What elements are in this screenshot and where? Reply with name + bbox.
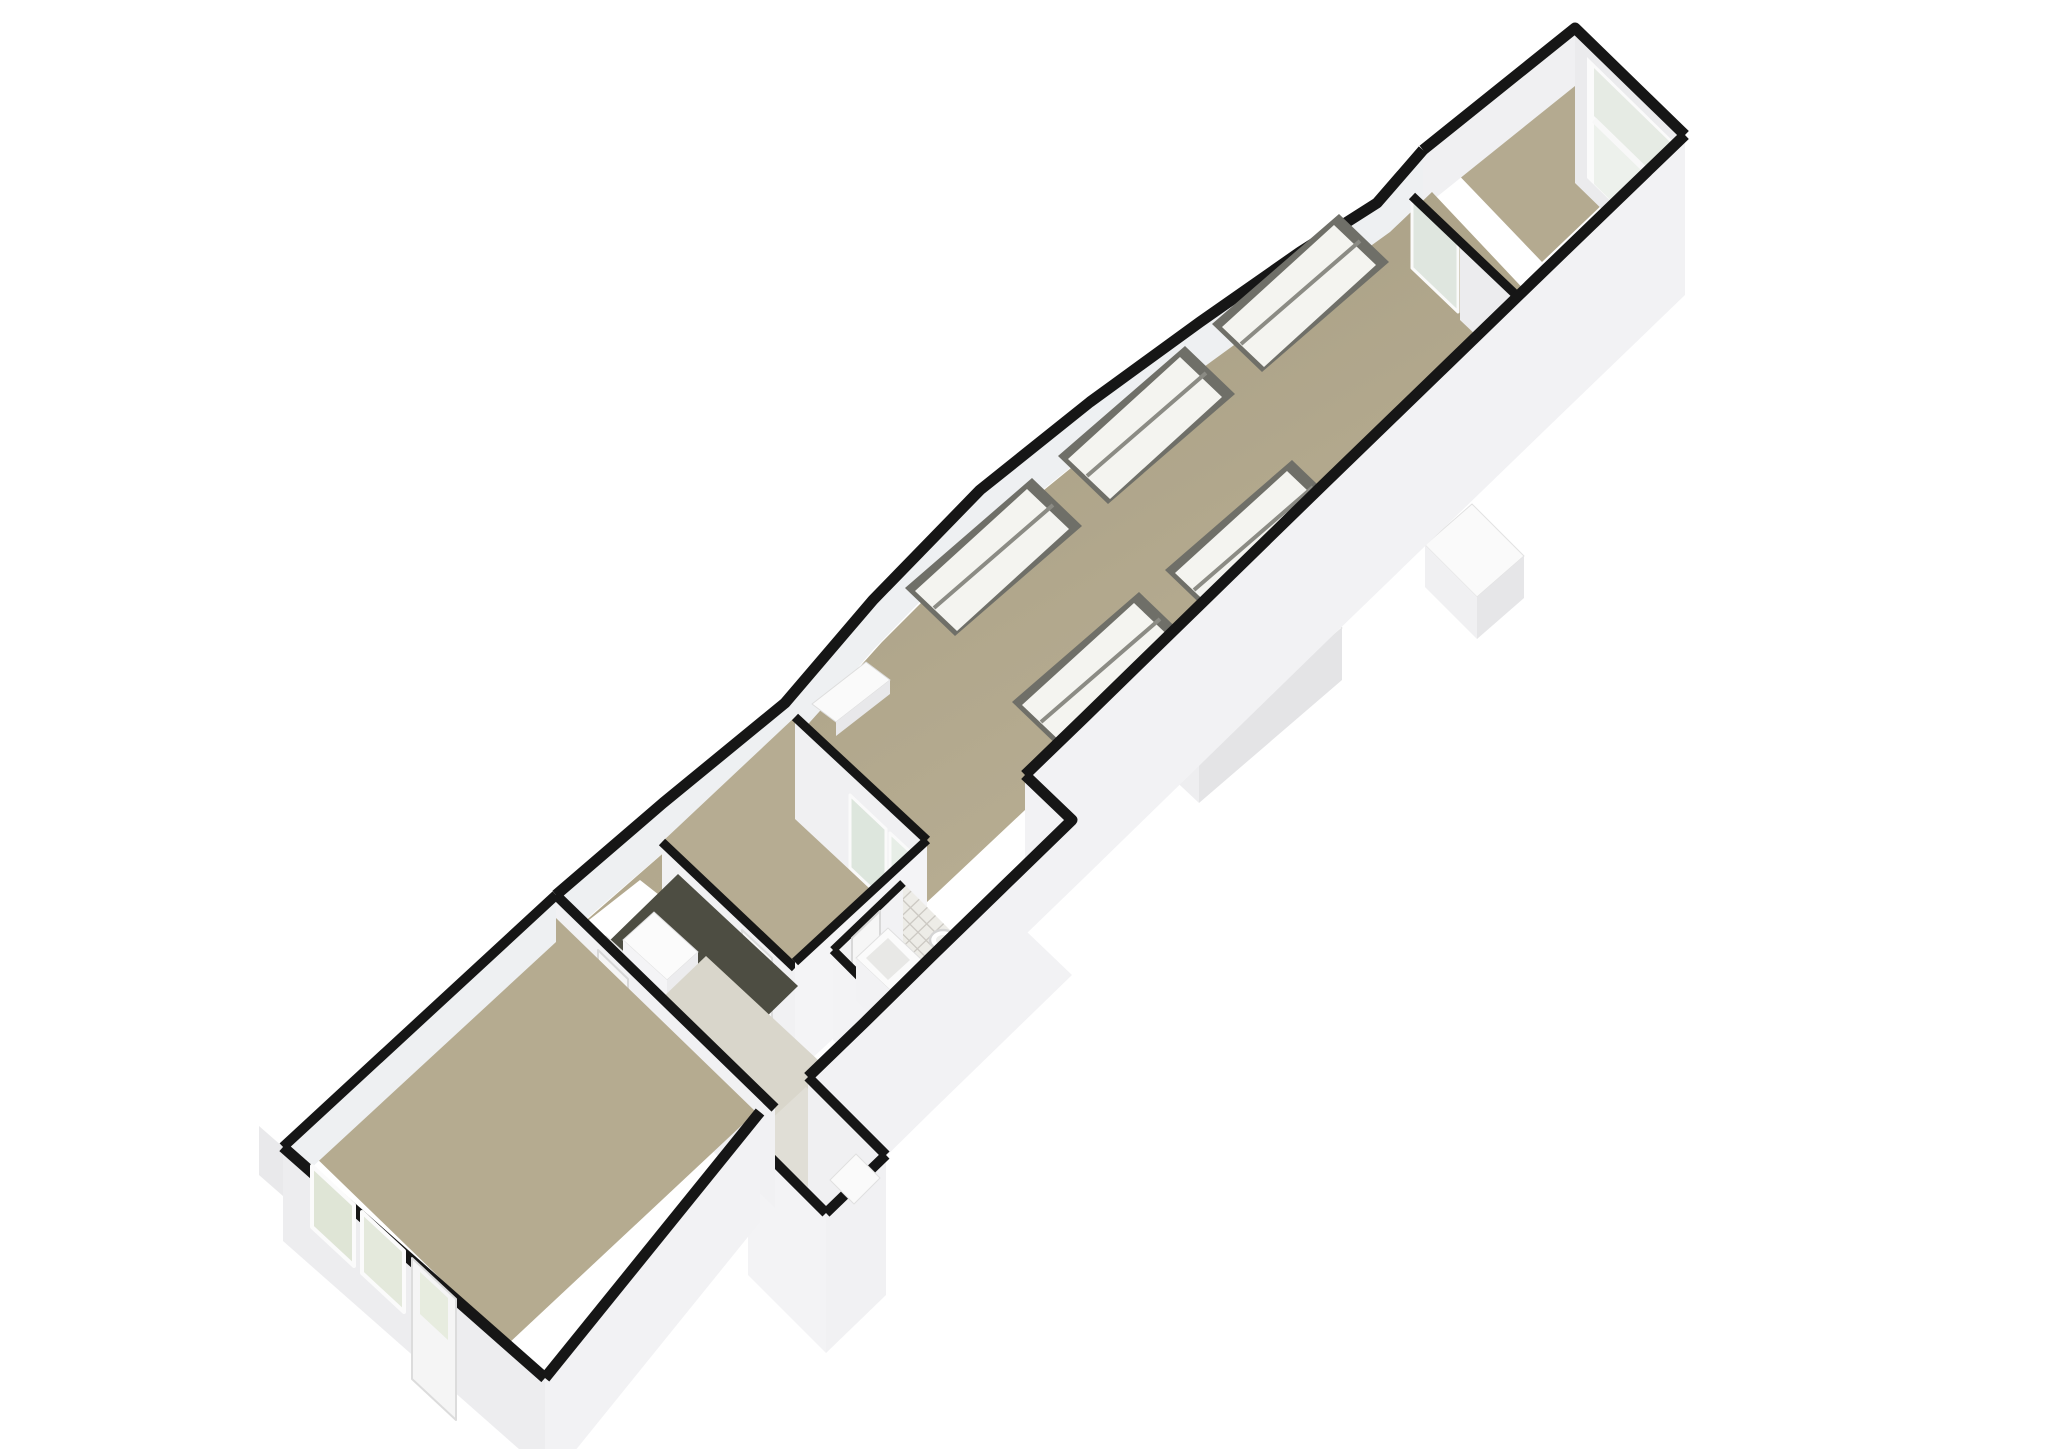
floorplan-3d-canvas[interactable] <box>0 0 2048 1449</box>
floorplan-page <box>0 0 2048 1449</box>
bottomleft-corner-skirt <box>259 1126 283 1196</box>
